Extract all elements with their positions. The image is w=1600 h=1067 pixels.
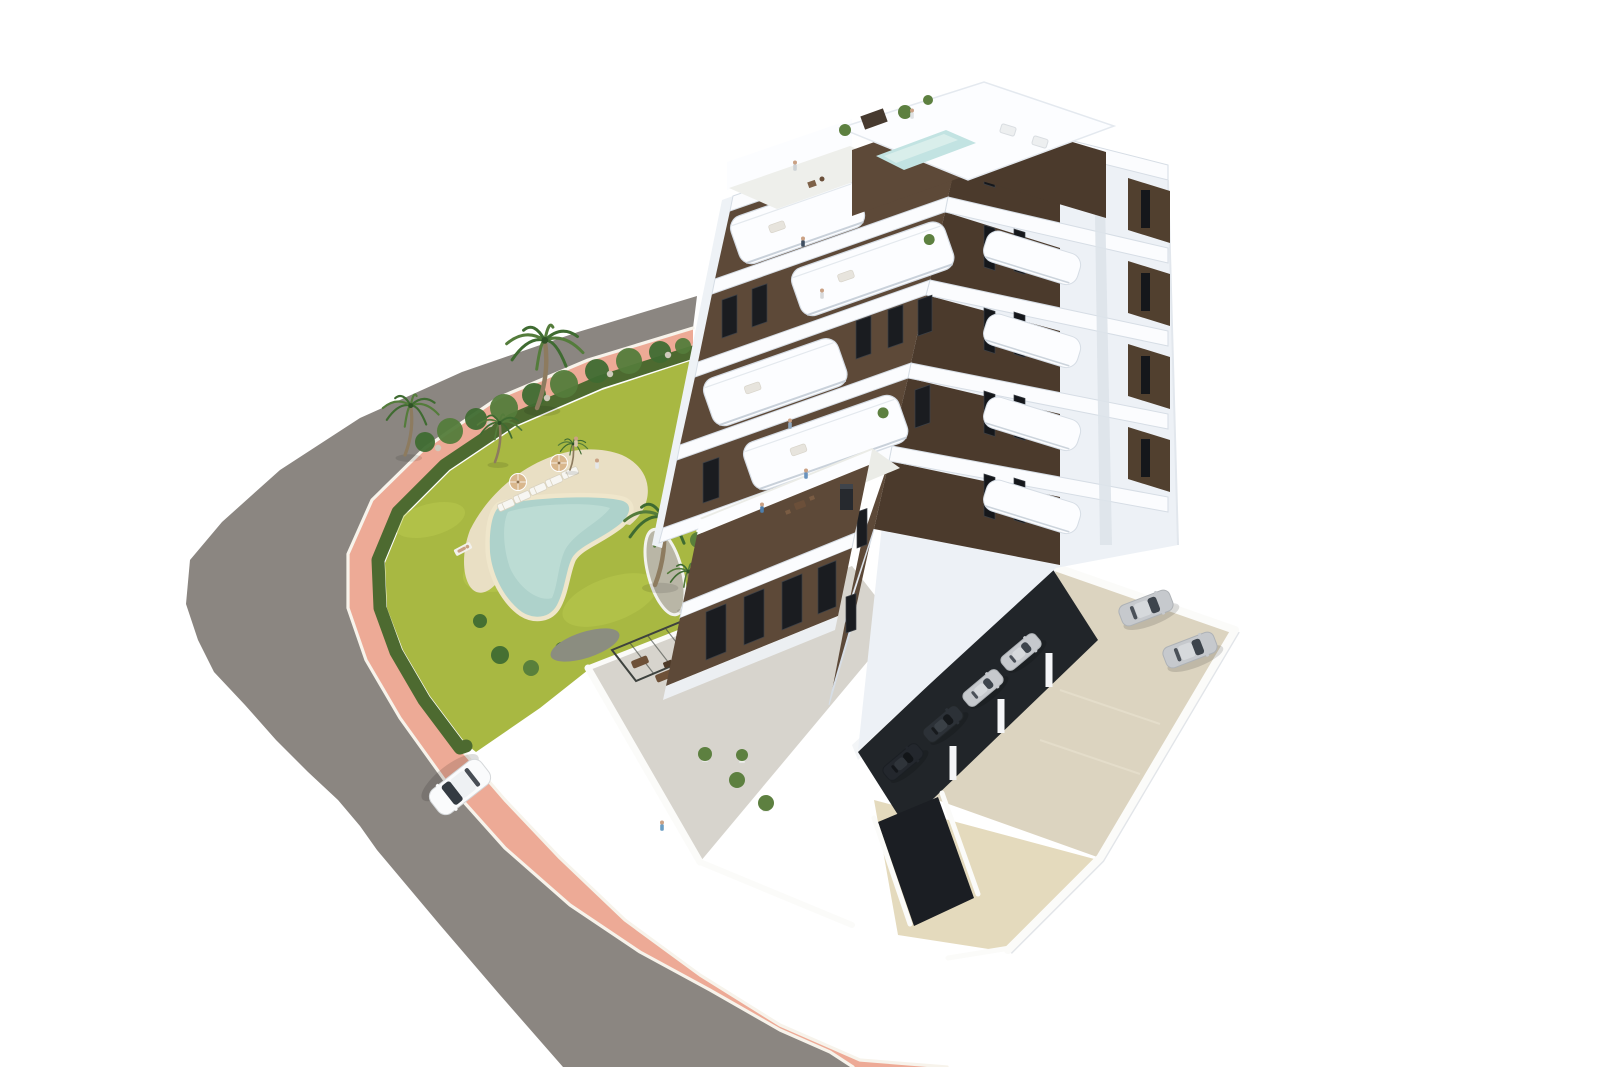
- person-head: [788, 419, 792, 423]
- person-head: [660, 821, 664, 825]
- person-head: [793, 161, 797, 165]
- parasol-pole: [558, 462, 561, 465]
- roof-plant: [923, 95, 933, 105]
- palm-shadow: [488, 462, 509, 468]
- person-body: [793, 164, 797, 171]
- roof-plant: [839, 124, 851, 136]
- rock: [435, 445, 441, 451]
- pier-window: [1141, 356, 1150, 394]
- potted-plant: [736, 749, 748, 761]
- palm-crown: [408, 403, 413, 408]
- person: [760, 503, 764, 513]
- parasol-pole: [517, 481, 520, 484]
- chimney-box: [840, 486, 853, 510]
- garage-pillar: [950, 746, 957, 780]
- person-body: [788, 422, 792, 429]
- window: [703, 457, 719, 503]
- window: [722, 295, 737, 338]
- potted-plant: [758, 795, 774, 811]
- pier-window: [1141, 190, 1150, 228]
- parasol: [510, 474, 527, 491]
- person-body: [595, 462, 599, 469]
- person-head: [820, 289, 824, 293]
- person-body: [801, 240, 805, 247]
- person: [820, 289, 824, 299]
- window: [888, 305, 903, 348]
- palm-crown: [498, 421, 502, 425]
- pier-window: [1141, 439, 1150, 477]
- palm-shadow: [642, 583, 678, 593]
- person-head: [574, 437, 578, 441]
- window: [915, 385, 930, 428]
- person-body: [760, 506, 764, 513]
- shrub: [585, 359, 609, 383]
- person-head: [760, 503, 764, 507]
- person: [574, 437, 578, 447]
- person: [804, 469, 808, 479]
- chimney-top: [840, 484, 853, 489]
- driveway-wall: [700, 862, 852, 925]
- person-head: [910, 109, 914, 113]
- pier-window: [1141, 273, 1150, 311]
- palm-crown: [541, 337, 548, 344]
- parasol: [551, 455, 568, 472]
- window: [918, 295, 932, 336]
- shrub: [550, 370, 578, 398]
- rock: [607, 371, 613, 377]
- garage-pillar: [998, 699, 1005, 733]
- rock: [544, 395, 550, 401]
- person: [801, 237, 805, 247]
- driveway-wall-small: [948, 948, 1010, 958]
- shrub: [465, 408, 487, 430]
- window: [818, 561, 836, 614]
- potted-plant: [698, 747, 712, 761]
- person-body: [804, 472, 808, 479]
- window: [744, 589, 764, 645]
- shrub: [473, 614, 487, 628]
- potted-plant: [729, 772, 745, 788]
- person-body: [910, 112, 914, 119]
- shrub: [523, 660, 539, 676]
- person-body: [574, 440, 578, 447]
- person-head: [804, 469, 808, 473]
- palm-shadow: [524, 406, 560, 416]
- person-body: [660, 824, 664, 831]
- window: [782, 574, 802, 630]
- shrub: [415, 432, 435, 452]
- person-head: [595, 459, 599, 463]
- roof-table: [820, 177, 825, 182]
- garage-pillar: [1046, 653, 1053, 687]
- shrub: [437, 418, 463, 444]
- palm-shadow: [396, 454, 423, 462]
- palm-crown: [572, 443, 575, 446]
- person: [793, 161, 797, 171]
- person: [595, 459, 599, 469]
- window: [706, 604, 726, 660]
- shrub: [491, 646, 509, 664]
- window: [846, 594, 856, 634]
- person: [910, 109, 914, 119]
- window: [752, 284, 767, 327]
- roof-plant: [898, 105, 912, 119]
- window: [856, 316, 871, 359]
- render-canvas: Aerial 3D architectural render - modern …: [0, 0, 1600, 1067]
- person: [788, 419, 792, 429]
- scene-svg: Aerial 3D architectural render - modern …: [0, 0, 1600, 1067]
- shrub: [675, 338, 691, 354]
- person-head: [801, 237, 805, 241]
- person: [660, 821, 664, 831]
- person-body: [820, 292, 824, 299]
- palm-shadow: [565, 471, 579, 475]
- rock: [665, 352, 671, 358]
- shrub: [616, 348, 642, 374]
